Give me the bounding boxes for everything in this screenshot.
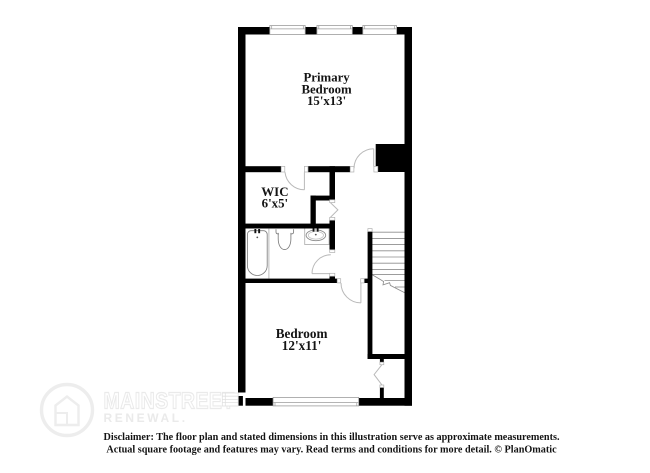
svg-text:12'x11': 12'x11' (282, 338, 322, 353)
svg-text:RENEWAL.: RENEWAL. (104, 411, 188, 425)
svg-text:Disclaimer: The floor plan and: Disclaimer: The floor plan and stated di… (104, 432, 560, 443)
svg-text:6'x5': 6'x5' (262, 196, 289, 210)
svg-text:15'x13': 15'x13' (307, 94, 346, 108)
svg-text:Actual square footage and feat: Actual square footage and features may v… (106, 444, 557, 455)
